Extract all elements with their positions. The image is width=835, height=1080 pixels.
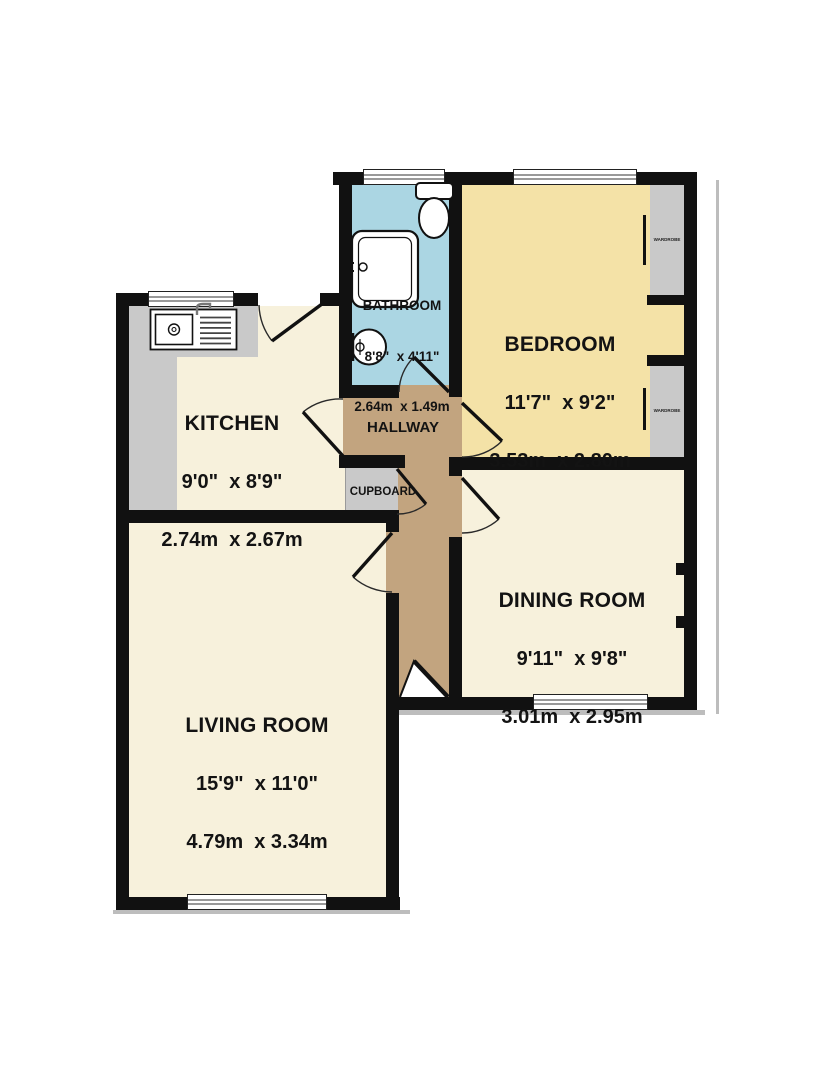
living-room-label: LIVING ROOM 15'9" x 11'0" 4.79m x 3.34m bbox=[185, 678, 328, 889]
cupboard-label: CUPBOARD bbox=[350, 486, 416, 498]
wardrobe-2-label: WARDROBE bbox=[654, 409, 681, 414]
front-door bbox=[400, 661, 448, 697]
doors-and-fixtures-layer bbox=[0, 0, 835, 1080]
living-room-door bbox=[353, 533, 392, 592]
toilet-icon bbox=[416, 183, 453, 238]
hallway-label: HALLWAY bbox=[367, 419, 439, 436]
wardrobe-1-label: WARDROBE bbox=[654, 238, 681, 243]
back-door bbox=[259, 304, 322, 341]
dining-room-label: DINING ROOM 9'11" x 9'8" 3.01m x 2.95m bbox=[499, 553, 646, 764]
bedroom-label: BEDROOM 11'7" x 9'2" 3.53m x 2.80m bbox=[489, 297, 630, 508]
floor-plan: BATHROOM 8'8" x 4'11" 2.64m x 1.49m BEDR… bbox=[0, 0, 835, 1080]
kitchen-door bbox=[303, 399, 343, 456]
kitchen-sink-icon bbox=[151, 304, 237, 350]
kitchen-label: KITCHEN 9'0" x 8'9" 2.74m x 2.67m bbox=[161, 376, 302, 587]
